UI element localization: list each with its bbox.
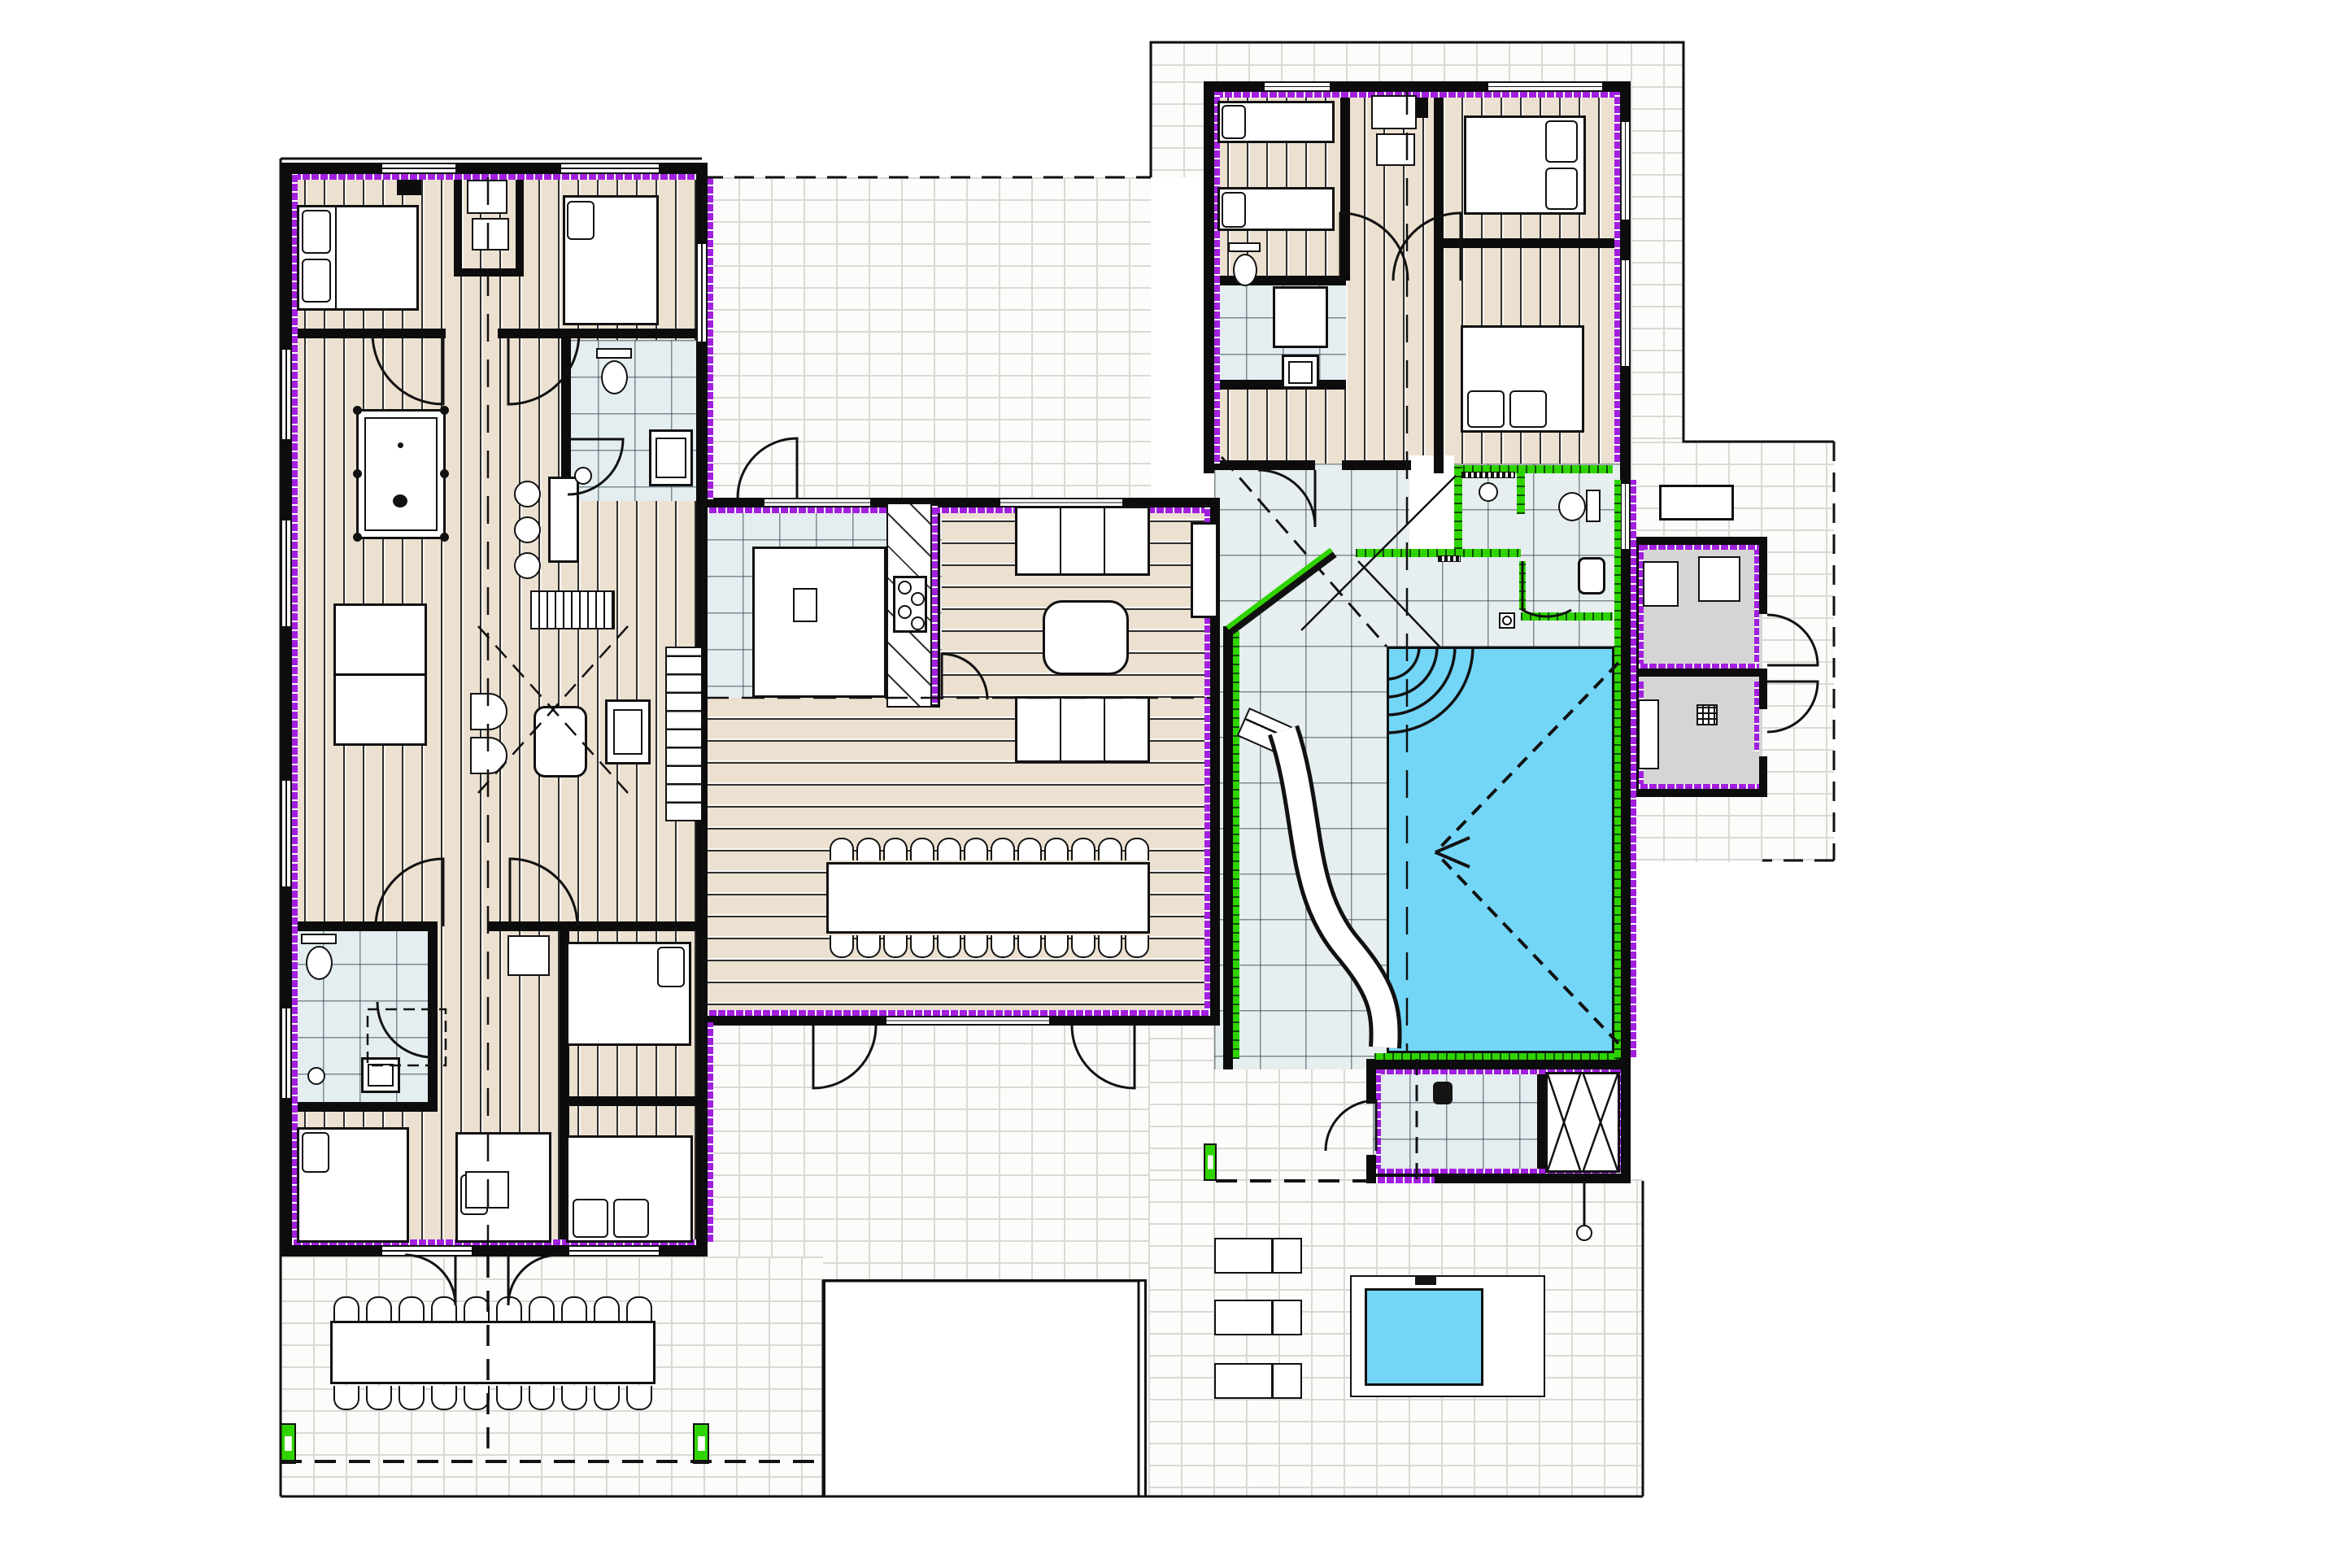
wall-lw-bottom-f [560, 1096, 698, 1106]
swimming-pool [1387, 647, 1614, 1053]
louver-closet [1545, 1072, 1620, 1173]
patio-chair [594, 1386, 620, 1410]
pillow [573, 1199, 608, 1238]
pillow [1545, 120, 1578, 163]
window-lw-left-1 [281, 350, 292, 439]
pingpong-net [333, 673, 427, 676]
window-center-bottom-1 [886, 1016, 1049, 1026]
toilet-tank [1586, 490, 1601, 522]
dining-chair [883, 935, 908, 958]
window-center-top-1 [764, 498, 870, 507]
plunge-pool [1365, 1288, 1483, 1386]
pillow [567, 201, 595, 240]
purple-pool-right-out [1631, 480, 1636, 1059]
billiard-pocket [440, 406, 449, 415]
dining-chair [964, 935, 988, 958]
billiard-cueball [398, 442, 403, 448]
toilet-bowl [1558, 492, 1586, 521]
purple-kitchen-wall [932, 506, 938, 704]
burner [898, 581, 912, 595]
pillow [302, 259, 331, 303]
shower-head [1479, 482, 1498, 502]
purple-storea-right [1754, 550, 1759, 664]
wall-storea-right [1759, 537, 1767, 614]
window-lw-top-2 [561, 163, 659, 174]
sun-lounger [1214, 1300, 1302, 1335]
outdoor-shower [1576, 1225, 1592, 1241]
pool-vestibule [1409, 455, 1454, 549]
purple-lw-left [292, 174, 298, 1239]
wall-tr-v1 [1340, 87, 1350, 281]
towel-rail [1438, 555, 1461, 562]
billiard-pocket [440, 469, 449, 478]
patio-chair [529, 1296, 555, 1321]
dining-table-outdoor [330, 1321, 656, 1384]
wall-store-mid [1631, 669, 1767, 677]
wall-lw-closet-b [516, 168, 524, 272]
window-lw-left-3 [281, 781, 292, 886]
wall-lw-bottom-a [291, 921, 438, 931]
bath-sink [1288, 361, 1313, 384]
piano [530, 590, 615, 629]
pillow [302, 1132, 329, 1173]
wall-lw-closet-c [454, 268, 524, 277]
deck-courtyard-bottom [706, 1021, 1148, 1279]
dining-chair [1071, 838, 1095, 860]
pillow [1222, 192, 1246, 228]
coffee-table [1043, 600, 1129, 675]
floor-drain-cap [1502, 616, 1512, 625]
toilet-bowl [306, 946, 333, 980]
toilet-bowl [1233, 254, 1257, 286]
side-table-inner [613, 709, 642, 755]
stool [514, 516, 541, 543]
wall-storeb-bottom [1631, 789, 1767, 797]
purple-storeb-right [1754, 682, 1759, 751]
wall-tr-bath-bottom [1209, 380, 1346, 390]
store-box [1643, 561, 1679, 607]
wall-lw-bottom-d [291, 1102, 438, 1112]
pergola-post [693, 1423, 709, 1464]
purple-lw-top [292, 174, 696, 180]
dining-chair [1098, 935, 1122, 958]
patio-chair [431, 1296, 457, 1321]
patio-chair [399, 1296, 425, 1321]
dining-chair [1071, 935, 1095, 958]
wall-tr-bottom-a [1209, 460, 1315, 470]
purple-storeb-bottom [1639, 784, 1759, 789]
wall-tr-v2 [1434, 87, 1444, 473]
dining-chair [856, 935, 881, 958]
patio-chair [366, 1296, 392, 1321]
dining-chair [991, 935, 1015, 958]
toilet-bowl [601, 360, 628, 394]
billiard-pocket [353, 469, 362, 478]
sun-lounger [1214, 1363, 1302, 1399]
green-pool-right [1614, 480, 1621, 1059]
wall-poolhouse-right [1621, 1059, 1631, 1183]
floor-plan-canvas [0, 0, 2352, 1568]
window-tr-top-2 [1488, 81, 1602, 92]
billiard-pocket [440, 533, 449, 542]
pillow [1467, 390, 1505, 428]
wall-storea-top [1631, 537, 1767, 545]
purple-storea-bottom [1639, 664, 1759, 669]
dining-chair [1044, 935, 1069, 958]
green-shower-stub [1519, 561, 1526, 610]
wall-poolhouse-left-a [1366, 1059, 1376, 1104]
purple-tr-right [1614, 92, 1620, 464]
billiard-pocket [353, 406, 362, 415]
wall-pool-left [1223, 626, 1233, 1069]
pergola-post [280, 1423, 296, 1464]
deck-topright-right [1631, 42, 1683, 442]
dining-chair [991, 838, 1015, 860]
patio-chair [366, 1386, 392, 1410]
wall-storeb-right-a [1759, 677, 1767, 709]
dining-chair [1125, 935, 1149, 958]
wall-lw-bottom-c [428, 927, 438, 1108]
window-tr-right-2 [1620, 260, 1631, 366]
green-pool-left [1233, 631, 1239, 1059]
window-lw-left-4 [281, 1008, 292, 1098]
window-pool-right [1620, 484, 1631, 549]
pergola-post [1204, 1143, 1217, 1181]
dining-chair [1125, 838, 1149, 860]
patio-chair [333, 1386, 359, 1410]
billiard-table-rail [364, 417, 438, 531]
floor-grate [1696, 704, 1718, 725]
purple-lw-right-lower [708, 1022, 713, 1244]
patio-chair [561, 1296, 587, 1321]
dining-chair [964, 838, 988, 860]
patio-chair [496, 1386, 522, 1410]
shower-head [574, 467, 592, 485]
purple-tr-left [1214, 92, 1220, 464]
purple-lw-right-upper [708, 177, 713, 499]
plunge-pool-ladder [1415, 1275, 1436, 1285]
staircase [665, 647, 703, 821]
window-lw-right-1 [696, 244, 708, 342]
patio-chair [333, 1296, 359, 1321]
wall-pool-right [1620, 473, 1631, 1069]
pillow [1509, 390, 1547, 428]
bath-sink [368, 1064, 394, 1087]
pillow [613, 1199, 649, 1238]
window-tr-right-1 [1620, 122, 1631, 220]
patio-chair [529, 1386, 555, 1410]
closet-box [1371, 95, 1417, 129]
patio-chair [464, 1296, 490, 1321]
dining-chair [1017, 838, 1042, 860]
patio-chair [431, 1386, 457, 1410]
wc-sink [1578, 557, 1605, 595]
dining-chair [910, 935, 934, 958]
patio-chair [561, 1386, 587, 1410]
wall-lw-room1 [291, 329, 446, 338]
shower-head [307, 1067, 325, 1085]
dining-table-indoor [826, 862, 1150, 934]
patio-chair [626, 1296, 652, 1321]
window-lw-left-2 [281, 520, 292, 626]
wall-lw-bottom-b [488, 921, 698, 931]
purple-sill-poolhouse [1376, 1177, 1435, 1183]
armchair [470, 737, 507, 774]
stool [514, 552, 541, 579]
deck-courtyard-top [706, 177, 1151, 503]
deck-topright-top [1151, 42, 1683, 81]
billiard-rack [393, 494, 407, 507]
dining-chair [910, 838, 934, 860]
dining-chair [830, 838, 854, 860]
wall-tr-bath-top [1209, 276, 1346, 285]
shower-box [1273, 286, 1328, 348]
toilet-tank [301, 934, 337, 944]
burner [911, 592, 925, 606]
sauna-stove [1433, 1082, 1453, 1104]
burner [898, 605, 912, 619]
pillow [302, 210, 331, 254]
stool [514, 481, 541, 507]
patio-chair [594, 1296, 620, 1321]
window-lw-bottom-2 [569, 1245, 659, 1257]
dining-chair [1044, 838, 1069, 860]
wall-poolhouse-divider [1537, 1069, 1545, 1174]
entry-closet [465, 1171, 509, 1209]
bed-headline [335, 207, 337, 308]
closet-box [467, 180, 507, 214]
master-bed [752, 547, 886, 698]
wall-lw-room2 [498, 329, 698, 338]
dining-chair [856, 838, 881, 860]
purple-center-bottom [708, 1010, 1210, 1016]
pillow [1545, 168, 1578, 210]
green-pool-bottom [1374, 1053, 1618, 1060]
sofa-bottom [1015, 696, 1150, 763]
bench-seat [548, 477, 579, 563]
nightstand [793, 588, 817, 622]
patio-chair [399, 1386, 425, 1410]
pillow [1222, 105, 1246, 139]
green-shower-divider [1517, 473, 1525, 514]
sofa-top [1015, 506, 1150, 576]
window-lw-bottom-1 [382, 1245, 472, 1257]
toilet-tank [1228, 242, 1261, 252]
billiard-pocket [353, 533, 362, 542]
hall-table [507, 935, 550, 976]
patio-chair [464, 1386, 490, 1410]
purple-tr-top [1214, 92, 1620, 98]
patio-chair [496, 1296, 522, 1321]
cabinet [1191, 522, 1218, 618]
wall-tr-bottom-b [1342, 460, 1411, 470]
purple-storea-top [1639, 545, 1759, 550]
green-shower-bottom [1521, 612, 1613, 621]
outdoor-bench [1659, 485, 1734, 520]
sun-lounger [1214, 1238, 1302, 1274]
dining-chair [883, 838, 908, 860]
dining-chair [1017, 935, 1042, 958]
wall-pool-bottom [1366, 1059, 1631, 1069]
patio-chair [626, 1386, 652, 1410]
bath-sink [656, 438, 686, 478]
closet-box [1376, 133, 1415, 166]
dining-chair [830, 935, 854, 958]
toilet-tank [596, 348, 632, 359]
barrel-chair [534, 706, 587, 777]
store-box [1638, 699, 1659, 769]
armchair [470, 693, 507, 730]
dining-chair [1098, 838, 1122, 860]
dining-chair [937, 935, 961, 958]
purple-poolhouse-left [1376, 1069, 1381, 1174]
dining-chair [937, 838, 961, 860]
burner [911, 616, 925, 630]
wall-lw-closet-a [454, 168, 462, 272]
closet-box [472, 218, 509, 250]
wall-tr-rooms-divider [1434, 238, 1631, 248]
window-lw-top-1 [382, 163, 455, 174]
store-box [1698, 556, 1740, 602]
deck-topright-left [1151, 81, 1204, 177]
window-tr-top-1 [1265, 81, 1330, 92]
towel-rail [1461, 472, 1515, 478]
deck-notch [823, 1279, 1147, 1496]
pillow [657, 947, 685, 987]
